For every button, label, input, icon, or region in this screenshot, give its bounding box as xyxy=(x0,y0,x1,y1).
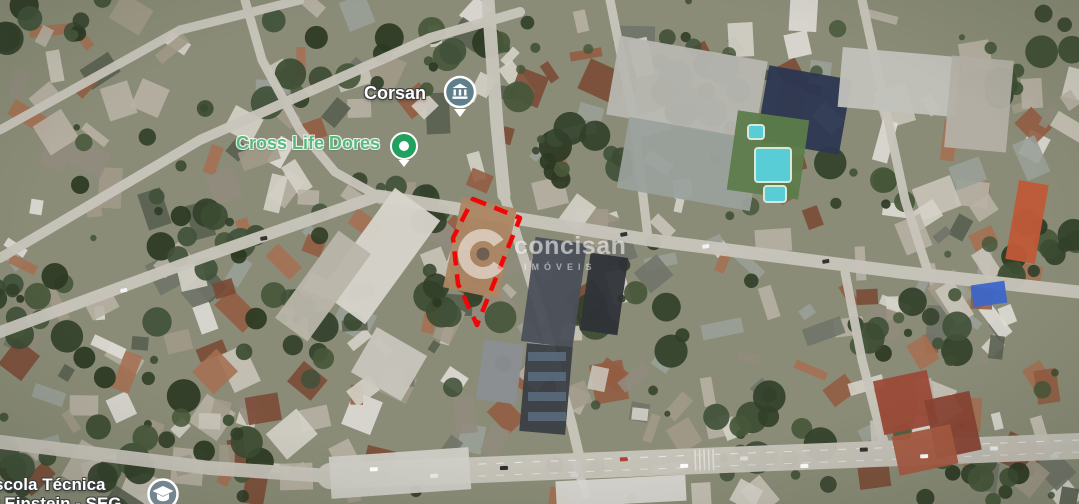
crosslife-label[interactable]: Cross Life Dores xyxy=(236,134,380,153)
graduation-cap-icon xyxy=(146,477,180,504)
satellite-map[interactable]: Corsan Cross Life Dores scola Técnica t … xyxy=(0,0,1079,504)
school-label[interactable]: scola Técnica t Einstein - SEG xyxy=(0,476,122,504)
corsan-label[interactable]: Corsan xyxy=(364,84,426,103)
school-marker[interactable] xyxy=(146,477,180,504)
school-label-line1: scola Técnica xyxy=(0,475,106,494)
government-building-icon xyxy=(442,75,478,119)
school-label-line2: t Einstein - SEG xyxy=(0,495,122,504)
place-dot-icon xyxy=(389,131,419,169)
satellite-imagery xyxy=(0,0,1079,504)
corsan-marker[interactable] xyxy=(442,75,478,124)
crosslife-marker[interactable] xyxy=(389,131,419,174)
